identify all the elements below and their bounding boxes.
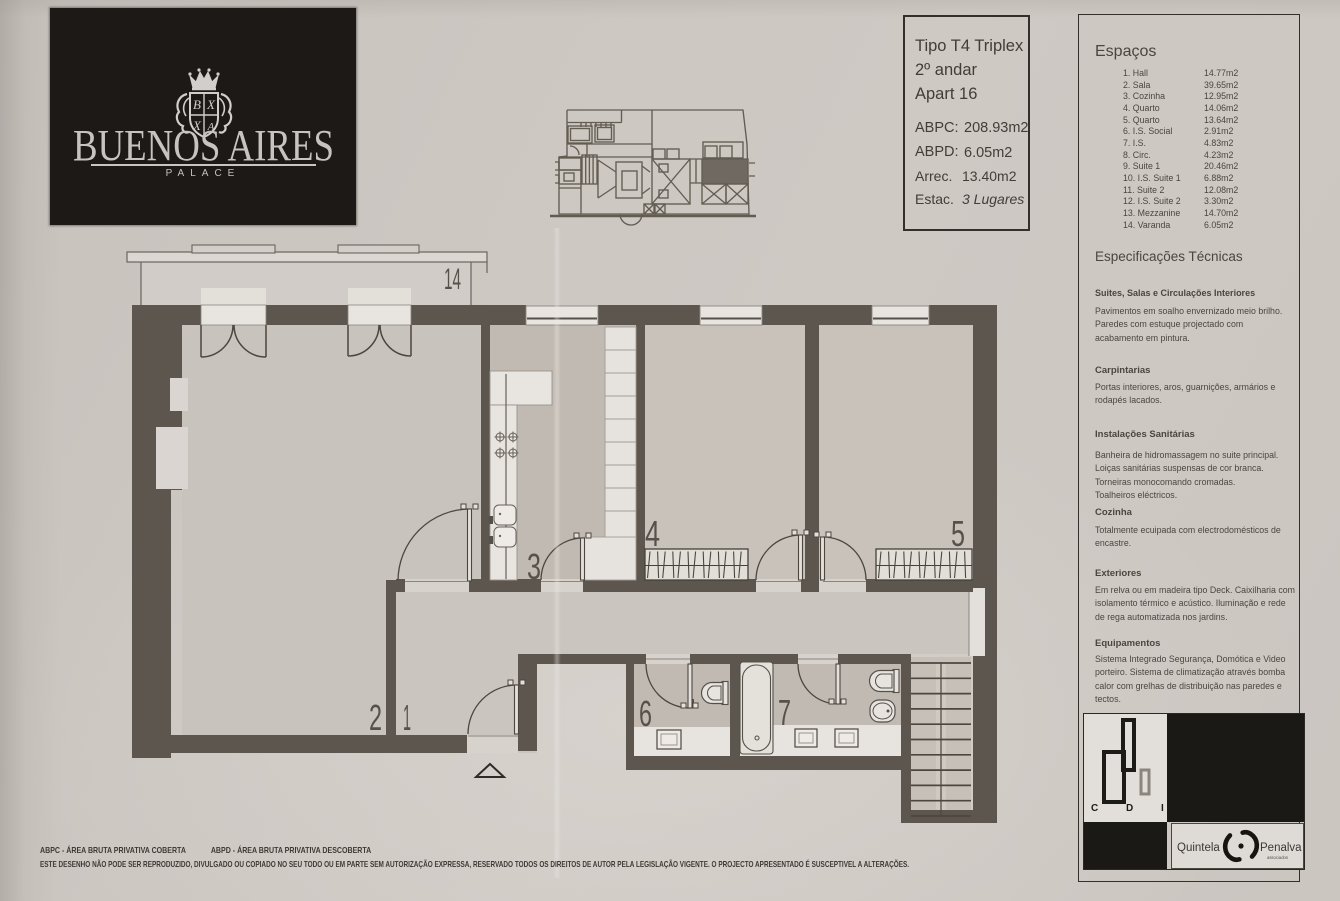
svg-text:7: 7: [778, 692, 791, 733]
svg-text:3: 3: [527, 546, 541, 587]
svg-text:2: 2: [369, 697, 382, 738]
svg-text:5: 5: [951, 513, 965, 554]
svg-text:6: 6: [639, 693, 652, 734]
svg-text:4: 4: [645, 513, 660, 554]
svg-text:1: 1: [403, 697, 411, 738]
svg-text:14: 14: [444, 263, 461, 296]
